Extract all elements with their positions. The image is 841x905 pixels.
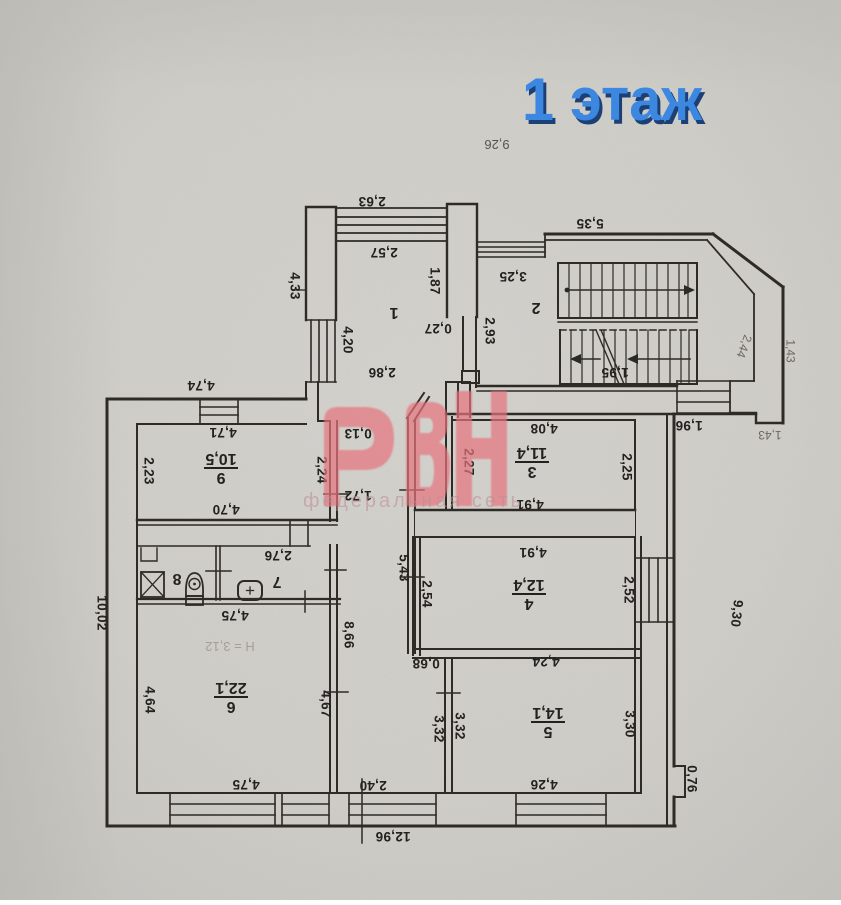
svg-text:0,27: 0,27 [424, 321, 451, 336]
svg-text:8: 8 [172, 570, 181, 587]
svg-text:4,70: 4,70 [212, 502, 239, 517]
svg-text:3,30: 3,30 [623, 710, 638, 737]
svg-text:3,25: 3,25 [499, 269, 527, 284]
svg-text:0,76: 0,76 [685, 765, 700, 793]
svg-text:11,4: 11,4 [517, 444, 547, 461]
svg-text:4,75: 4,75 [221, 608, 249, 623]
svg-text:2,57: 2,57 [370, 245, 397, 260]
svg-text:4,91: 4,91 [519, 545, 547, 560]
svg-text:4,08: 4,08 [530, 421, 558, 436]
svg-text:1: 1 [389, 304, 398, 321]
svg-text:6: 6 [226, 698, 235, 715]
svg-text:4,74: 4,74 [187, 378, 215, 393]
svg-text:2,52: 2,52 [622, 576, 637, 603]
svg-text:1,43: 1,43 [758, 428, 782, 442]
svg-text:9,26: 9,26 [484, 137, 509, 152]
svg-text:2,23: 2,23 [142, 457, 157, 485]
svg-text:12,96: 12,96 [375, 829, 410, 844]
svg-text:Н = 3,12: Н = 3,12 [205, 639, 255, 654]
svg-text:4,71: 4,71 [209, 425, 237, 440]
svg-text:1 этаж: 1 этаж [522, 66, 703, 133]
svg-text:14,1: 14,1 [532, 704, 563, 721]
svg-text:1,96: 1,96 [675, 418, 703, 433]
svg-text:4,33: 4,33 [288, 272, 303, 300]
svg-text:10,02: 10,02 [95, 595, 110, 630]
svg-text:2: 2 [531, 299, 540, 316]
svg-text:5,35: 5,35 [576, 216, 604, 231]
svg-text:5,43: 5,43 [397, 554, 412, 582]
svg-text:3: 3 [527, 463, 536, 480]
svg-text:10,5: 10,5 [205, 450, 236, 467]
svg-text:4,67: 4,67 [319, 690, 334, 717]
svg-text:0,13: 0,13 [344, 426, 372, 441]
svg-text:4: 4 [524, 595, 533, 612]
svg-text:2,25: 2,25 [620, 453, 635, 481]
svg-text:2,40: 2,40 [359, 778, 386, 793]
svg-text:12,4: 12,4 [513, 576, 544, 593]
svg-text:9: 9 [216, 469, 225, 486]
svg-text:4,75: 4,75 [232, 777, 260, 792]
svg-text:2,93: 2,93 [483, 317, 498, 345]
svg-text:2,63: 2,63 [358, 194, 386, 209]
svg-text:федеральная сеть: федеральная сеть [303, 490, 524, 512]
svg-text:8,66: 8,66 [342, 621, 357, 649]
svg-text:5: 5 [543, 723, 552, 740]
svg-text:4,64: 4,64 [143, 686, 158, 714]
svg-text:2,54: 2,54 [420, 580, 435, 608]
svg-text:4,24: 4,24 [532, 654, 560, 669]
svg-text:1,43: 1,43 [784, 339, 798, 363]
svg-text:4,26: 4,26 [530, 777, 558, 792]
svg-text:22,1: 22,1 [215, 679, 246, 696]
svg-text:0,68: 0,68 [412, 656, 440, 671]
svg-text:2,86: 2,86 [368, 365, 396, 380]
svg-text:1,95: 1,95 [601, 365, 629, 380]
svg-text:3,32: 3,32 [453, 712, 468, 739]
svg-text:7: 7 [272, 573, 281, 590]
svg-text:3,32: 3,32 [432, 715, 447, 742]
svg-text:4,20: 4,20 [341, 326, 356, 353]
svg-text:2,76: 2,76 [264, 548, 292, 563]
svg-text:1,87: 1,87 [428, 267, 443, 294]
